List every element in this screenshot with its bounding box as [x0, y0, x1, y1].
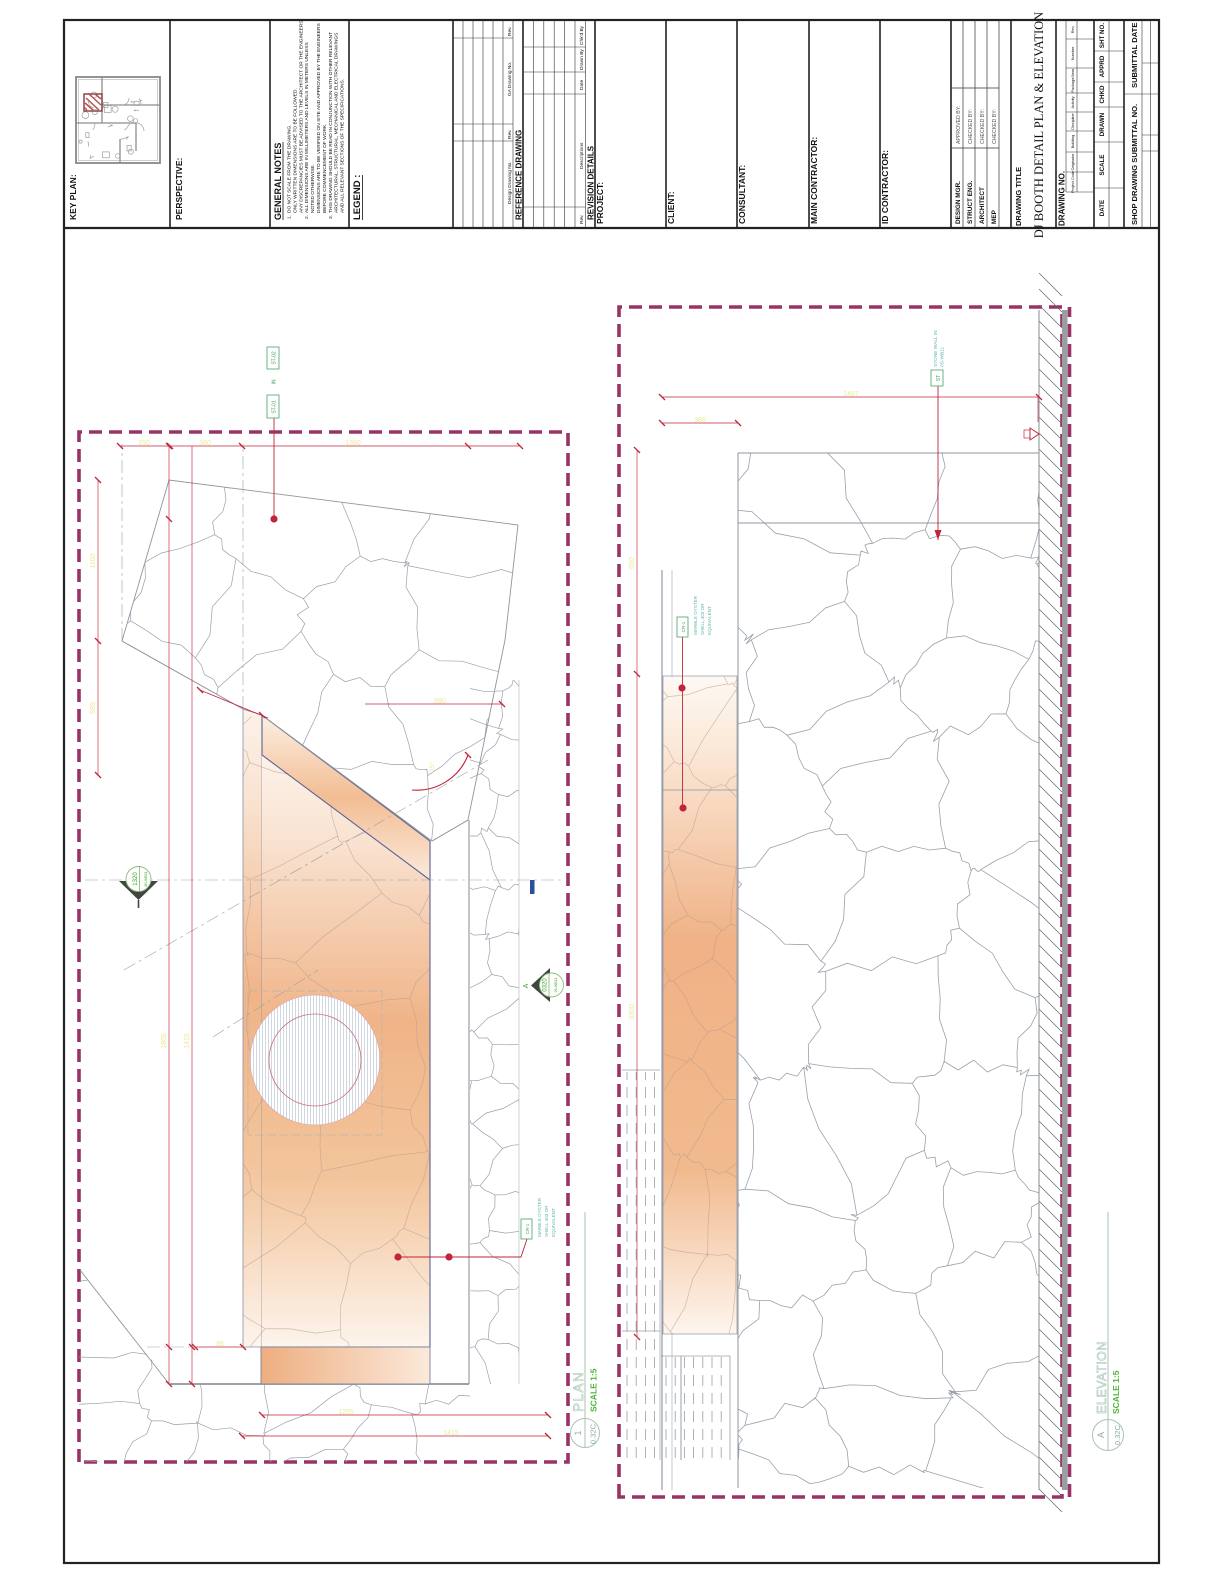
svg-text:PROJECT:: PROJECT: [595, 182, 605, 224]
svg-text:1: 1 [573, 1430, 583, 1435]
svg-text:SCALE 1:5: SCALE 1:5 [589, 1368, 599, 1412]
svg-text:1487: 1487 [843, 391, 859, 398]
svg-text:Project Code: Project Code [1071, 171, 1075, 193]
svg-text:0.32C: 0.32C [589, 1423, 598, 1444]
svg-text:A: A [1096, 1432, 1106, 1438]
svg-text:IN: IN [272, 379, 278, 384]
svg-text:CHECKED BY:: CHECKED BY: [992, 109, 998, 144]
svg-text:PLAN: PLAN [571, 1371, 586, 1412]
svg-text:AND ALL RELEVANT SECTIONS OF T: AND ALL RELEVANT SECTIONS OF THE SPECIFI… [340, 79, 346, 213]
svg-text:1100: 1100 [90, 553, 97, 568]
svg-text:DRAWING TITLE: DRAWING TITLE [1014, 167, 1023, 226]
svg-text:380: 380 [694, 417, 706, 424]
svg-text:590: 590 [434, 698, 446, 705]
svg-text:ST-02: ST-02 [272, 351, 278, 365]
svg-text:CHECKED BY:: CHECKED BY: [980, 109, 986, 144]
svg-text:1415: 1415 [443, 1430, 459, 1437]
svg-text:ID CONTRACTOR:: ID CONTRACTOR: [880, 150, 890, 224]
svg-text:REFERENCE DRAWING: REFERENCE DRAWING [515, 130, 524, 220]
svg-text:1390: 1390 [345, 440, 361, 447]
svg-text:Package/Area: Package/Area [1071, 68, 1075, 93]
svg-text:1865: 1865 [161, 1033, 168, 1049]
svg-text:STRUCT ENG.: STRUCT ENG. [967, 180, 974, 224]
svg-text:STONE WALL IN: STONE WALL IN [933, 330, 939, 367]
svg-text:NOTED OTHERWISE.: NOTED OTHERWISE. [310, 164, 316, 213]
svg-text:0.32C: 0.32C [1113, 1424, 1122, 1445]
svg-text:DIMENSIONS ARE TO BE VERIFIED: DIMENSIONS ARE TO BE VERIFIED ON SITE AN… [316, 23, 322, 213]
svg-text:DJ BOOTH DETAIL PLAN & EL: DJ BOOTH DETAIL PLAN & ELEVATION [1032, 12, 1046, 238]
svg-text:Activity: Activity [1071, 96, 1075, 108]
svg-text:EQUIVALENT: EQUIVALENT [551, 1208, 556, 1237]
svg-text:Rev.: Rev. [1071, 26, 1075, 34]
svg-text:15°: 15° [428, 762, 436, 772]
svg-text:PERSPECTIVE:: PERSPECTIVE: [174, 157, 184, 220]
svg-text:EQUIVALENT: EQUIVALENT [707, 606, 712, 635]
svg-text:585: 585 [90, 702, 97, 714]
svg-text:0N-WB11: 0N-WB11 [144, 871, 148, 886]
svg-text:Building: Building [1071, 135, 1075, 149]
svg-text:1255: 1255 [338, 1409, 354, 1416]
svg-text:SHT NO.: SHT NO. [1099, 23, 1106, 48]
svg-text:3300: 3300 [629, 1004, 636, 1020]
svg-text:THIS DRAWING SHOULD BE READ IN: THIS DRAWING SHOULD BE READ IN CONJUNCTI… [328, 32, 334, 213]
svg-text:DATE: DATE [1099, 200, 1106, 216]
svg-text:Descriptions: Descriptions [579, 142, 585, 169]
svg-text:DO NOT SCALE FROM THE DRAWING.: DO NOT SCALE FROM THE DRAWING. [287, 125, 293, 213]
svg-text:DRAWN: DRAWN [1099, 112, 1106, 136]
svg-text:SHELL 403 OR: SHELL 403 OR [544, 1205, 549, 1237]
svg-text:Number: Number [1071, 46, 1075, 60]
svg-text:SCALE 1:5: SCALE 1:5 [1111, 1370, 1121, 1414]
svg-text:Rev.: Rev. [579, 214, 585, 224]
svg-text:MARBLE OYSTER: MARBLE OYSTER [537, 1197, 542, 1237]
svg-text:Design Drawing No.: Design Drawing No. [507, 161, 513, 204]
svg-text:CHKD: CHKD [1099, 85, 1106, 103]
svg-text:CLIENT:: CLIENT: [666, 191, 676, 224]
svg-text:SHELL 403 OR: SHELL 403 OR [700, 603, 705, 635]
svg-text:CR-1: CR-1 [525, 1223, 530, 1234]
svg-text:KEY PLAN:: KEY PLAN: [68, 174, 78, 220]
svg-text:APPROVED BY:: APPROVED BY: [956, 106, 962, 144]
svg-text:CONSULTANT:: CONSULTANT: [737, 165, 747, 224]
svg-text:2.: 2. [304, 215, 310, 219]
svg-text:Drawn By: Drawn By [579, 49, 585, 70]
svg-text:Date: Date [579, 80, 585, 90]
svg-text:1415: 1415 [184, 1033, 191, 1049]
svg-text:85: 85 [216, 1341, 224, 1348]
svg-text:ANY DISCREPANCIES MUST BE ADVI: ANY DISCREPANCIES MUST BE ADVISED TO THE… [298, 19, 304, 213]
svg-text:CHECKED BY:: CHECKED BY: [968, 109, 974, 144]
svg-text:DRAWING NO.: DRAWING NO. [1058, 171, 1067, 226]
svg-text:MARBLE OYSTER: MARBLE OYSTER [693, 595, 698, 635]
svg-text:APPRD: APPRD [1099, 55, 1106, 77]
svg-text:Originator: Originator [1071, 153, 1075, 170]
svg-text:MAIN CONTRACTOR:: MAIN CONTRACTOR: [809, 137, 819, 224]
svg-text:A: A [523, 983, 530, 988]
svg-text:1.: 1. [287, 215, 293, 219]
svg-text:ARCHITECT: ARCHITECT [979, 187, 986, 224]
svg-text:1320: 1320 [133, 872, 139, 886]
svg-text:ARCHITECTURAL, STRUCTURAL, MEC: ARCHITECTURAL, STRUCTURAL, MECHANICAL AN… [334, 32, 340, 213]
svg-text:ELEVATION: ELEVATION [1095, 1341, 1109, 1414]
svg-text:Rev.: Rev. [507, 129, 513, 139]
svg-text:26-WB11: 26-WB11 [554, 978, 558, 993]
svg-text:650: 650 [629, 557, 636, 569]
svg-text:GA Drawing No.: GA Drawing No. [507, 62, 513, 96]
svg-text:ALL DIMENSIONS ARE IN MILLIMET: ALL DIMENSIONS ARE IN MILLIMETERS AND LE… [304, 41, 310, 213]
svg-text:CR-1: CR-1 [681, 621, 686, 632]
svg-text:SHOP DRAWING SUBMITTAL NO.: SHOP DRAWING SUBMITTAL NO. [1130, 104, 1139, 225]
svg-text:Chk'd By: Chk'd By [579, 25, 585, 45]
svg-text:LEGEND :: LEGEND : [352, 175, 363, 220]
svg-text:360: 360 [199, 440, 211, 447]
svg-text:MEP: MEP [991, 209, 998, 224]
svg-text:BEFORE COMMENCEMENT OF WORK.: BEFORE COMMENCEMENT OF WORK. [322, 123, 328, 213]
svg-text:DESIGN MGR.: DESIGN MGR. [955, 181, 962, 224]
svg-text:0S-WB11: 0S-WB11 [940, 346, 946, 367]
svg-text:ONLY WRITTEN DIMENSIONS ARE TO: ONLY WRITTEN DIMENSIONS ARE TO BE FOLLOW… [292, 88, 298, 213]
svg-text:SCALE: SCALE [1099, 155, 1106, 176]
svg-text:ST: ST [936, 375, 942, 381]
svg-text:250: 250 [138, 440, 150, 447]
svg-text:SUBMITTAL DATE: SUBMITTAL DATE [1130, 23, 1139, 88]
svg-text:0320: 0320 [543, 978, 549, 992]
svg-text:ST-01: ST-01 [272, 400, 278, 414]
svg-text:GENERAL NOTES: GENERAL NOTES [273, 143, 283, 220]
svg-text:Rev.: Rev. [507, 26, 513, 36]
svg-text:Discipline: Discipline [1071, 113, 1075, 129]
svg-text:3.: 3. [328, 215, 334, 219]
